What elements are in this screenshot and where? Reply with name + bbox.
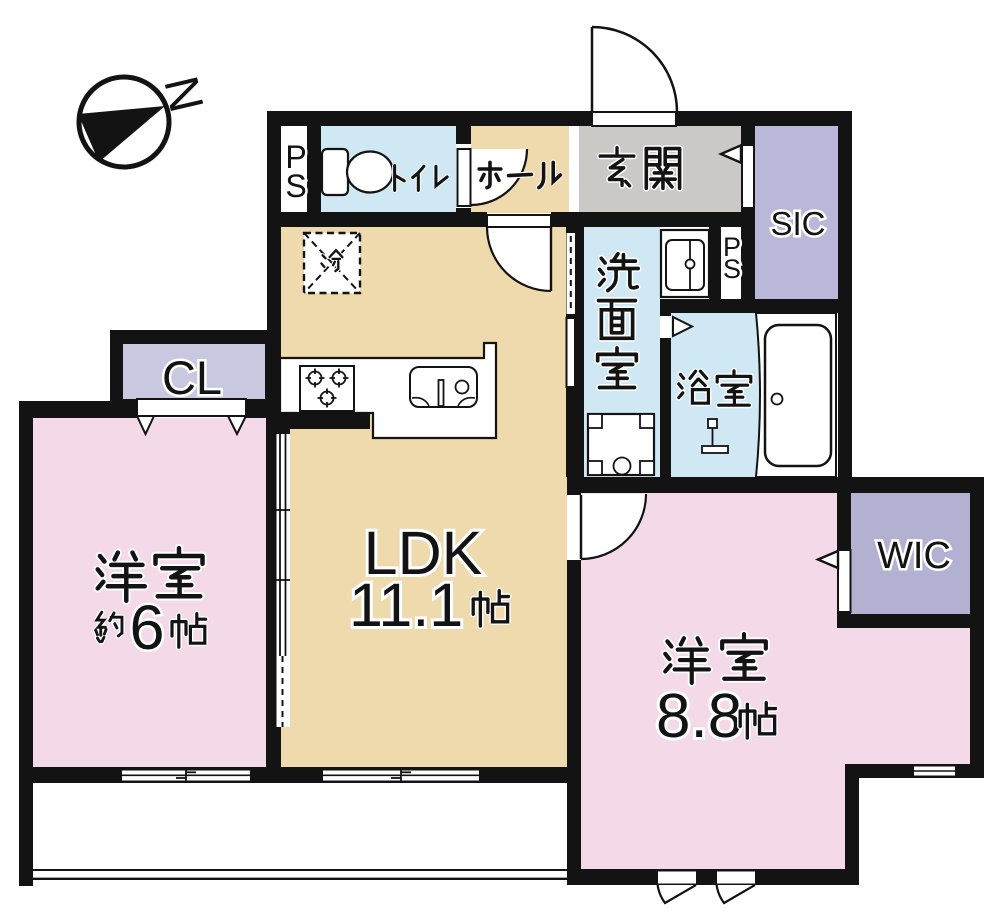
svg-text:6: 6	[129, 593, 164, 663]
svg-text:WIC: WIC	[877, 535, 951, 577]
svg-text:CL: CL	[162, 351, 222, 404]
svg-text:11.1: 11.1	[349, 571, 463, 639]
svg-text:S: S	[723, 254, 741, 284]
svg-text:8.8: 8.8	[656, 682, 742, 751]
svg-text:S: S	[285, 168, 306, 204]
svg-text:SIC: SIC	[770, 205, 825, 242]
